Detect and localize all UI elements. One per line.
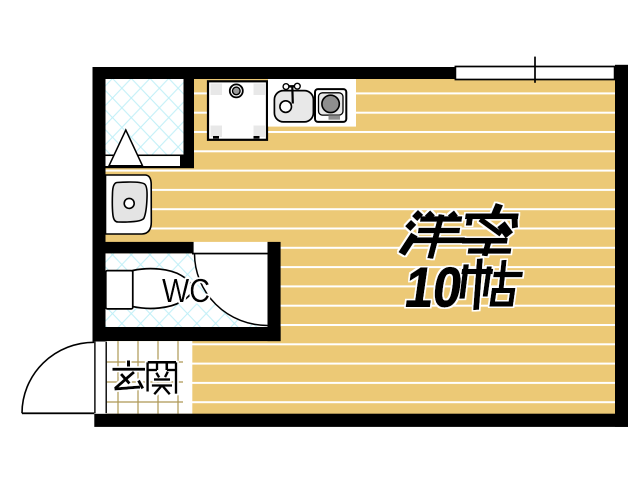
svg-text:10: 10 xyxy=(401,256,466,319)
svg-text:WC: WC xyxy=(162,272,210,309)
